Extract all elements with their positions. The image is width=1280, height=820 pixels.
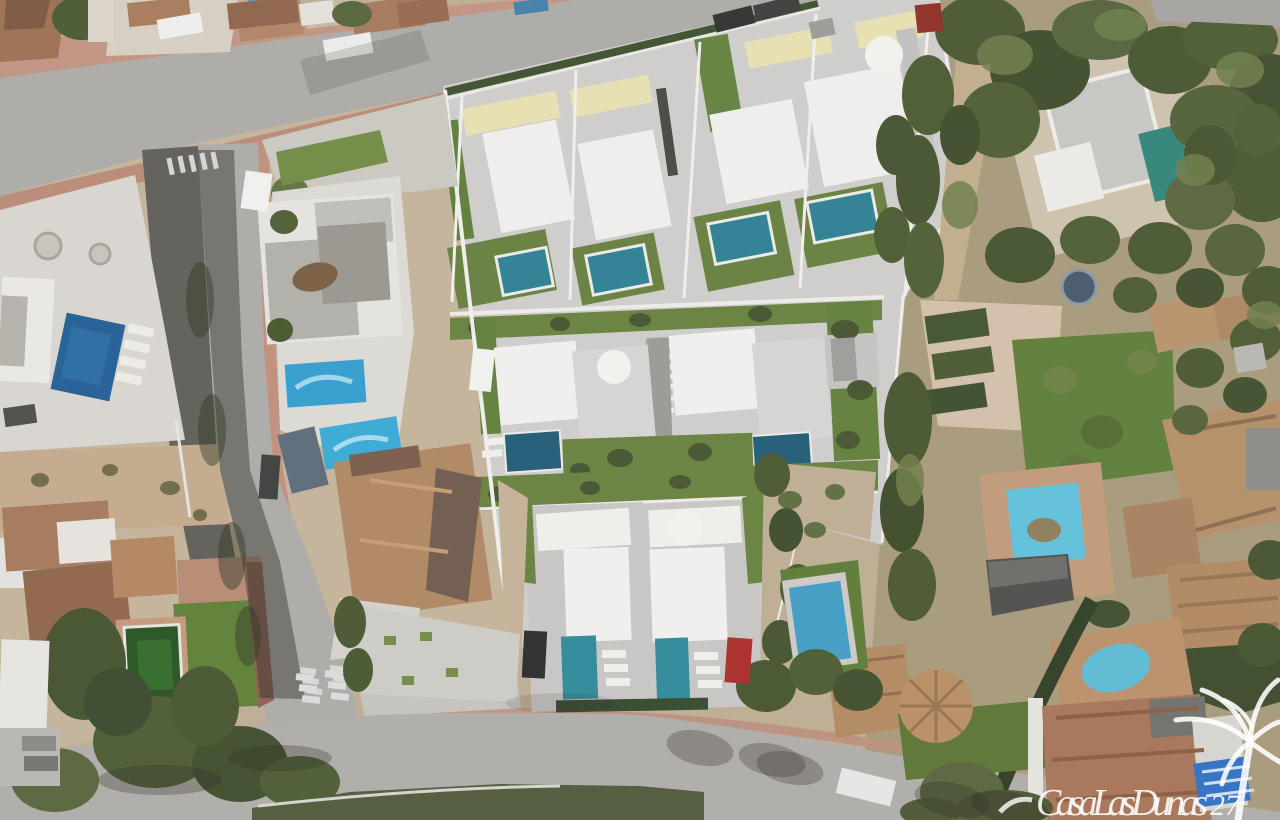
- svg-text:CasaLasDunas: CasaLasDunas: [1036, 782, 1208, 820]
